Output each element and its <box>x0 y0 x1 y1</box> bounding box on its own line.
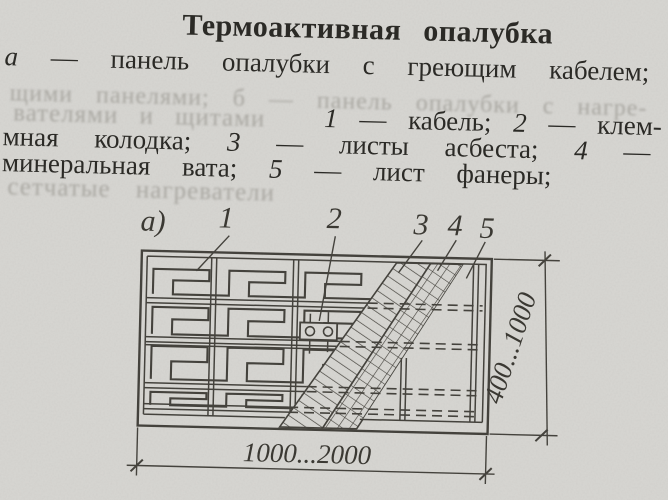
terminal-circle <box>305 327 314 336</box>
callout-2: 2 <box>326 202 342 235</box>
callout-5: 5 <box>479 212 495 245</box>
formwork-panel-diagram: а) 1 2 3 4 5 1000...2000 400...1000 <box>0 0 668 500</box>
callout-4: 4 <box>447 209 463 242</box>
figure-label: а) <box>140 205 166 239</box>
scanned-page: Термоактивная опалубка а — панель опалуб… <box>0 0 668 500</box>
callout-1: 1 <box>218 201 234 234</box>
dimension-width-value: 1000...2000 <box>243 437 372 470</box>
terminal-circle <box>323 327 332 336</box>
page-content: Термоактивная опалубка а — панель опалуб… <box>0 0 668 500</box>
callout-3: 3 <box>412 208 429 241</box>
dimension-width: 1000...2000 <box>126 427 495 484</box>
dimension-height-value: 400...1000 <box>478 288 543 407</box>
